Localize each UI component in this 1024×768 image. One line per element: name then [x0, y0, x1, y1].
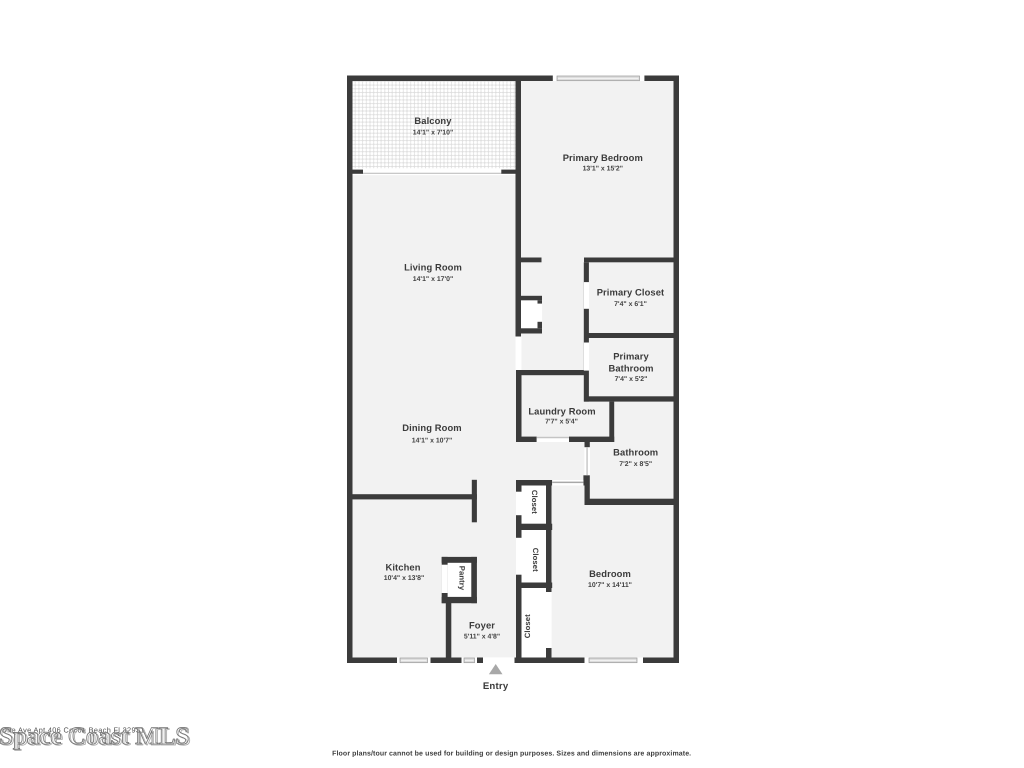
svg-text:Balcony: Balcony [414, 115, 452, 126]
svg-text:7'2" x 8'5": 7'2" x 8'5" [619, 461, 652, 468]
svg-text:10'4" x 13'8": 10'4" x 13'8" [384, 575, 424, 582]
svg-text:Bathroom: Bathroom [608, 362, 653, 373]
svg-text:Foyer: Foyer [469, 619, 495, 630]
svg-text:Living Room: Living Room [404, 262, 462, 273]
svg-text:5'11" x 4'8": 5'11" x 4'8" [464, 633, 500, 640]
svg-text:14'1" x 10'7": 14'1" x 10'7" [412, 438, 452, 445]
svg-text:14'1" x 7'10": 14'1" x 7'10" [413, 129, 453, 136]
svg-text:7'4" x 6'1": 7'4" x 6'1" [614, 301, 647, 308]
svg-text:Primary Bedroom: Primary Bedroom [563, 152, 643, 163]
svg-text:Entry: Entry [483, 681, 509, 692]
svg-text:Pantry: Pantry [458, 566, 467, 591]
svg-text:Closet: Closet [531, 548, 540, 572]
svg-text:Space Coast MLS: Space Coast MLS [0, 723, 189, 750]
svg-text:Floor plans/tour cannot be use: Floor plans/tour cannot be used for buil… [332, 750, 691, 758]
svg-text:10'7" x 14'11": 10'7" x 14'11" [588, 582, 632, 589]
svg-text:7'7" x 5'4": 7'7" x 5'4" [545, 419, 578, 426]
svg-text:Bedroom: Bedroom [589, 568, 631, 579]
svg-text:Kitchen: Kitchen [385, 561, 420, 572]
svg-text:Primary Closet: Primary Closet [597, 286, 665, 297]
svg-text:Dining Room: Dining Room [402, 422, 461, 433]
svg-text:Laundry Room: Laundry Room [528, 405, 595, 416]
svg-text:13'1" x 15'2": 13'1" x 15'2" [583, 166, 623, 173]
svg-text:14'1" x 17'0": 14'1" x 17'0" [413, 276, 453, 283]
svg-text:Closet: Closet [530, 490, 539, 514]
svg-text:Primary: Primary [613, 351, 649, 362]
svg-text:Closet: Closet [523, 614, 532, 638]
svg-text:Bathroom: Bathroom [613, 447, 658, 458]
svg-text:7'4" x 5'2": 7'4" x 5'2" [615, 376, 648, 383]
